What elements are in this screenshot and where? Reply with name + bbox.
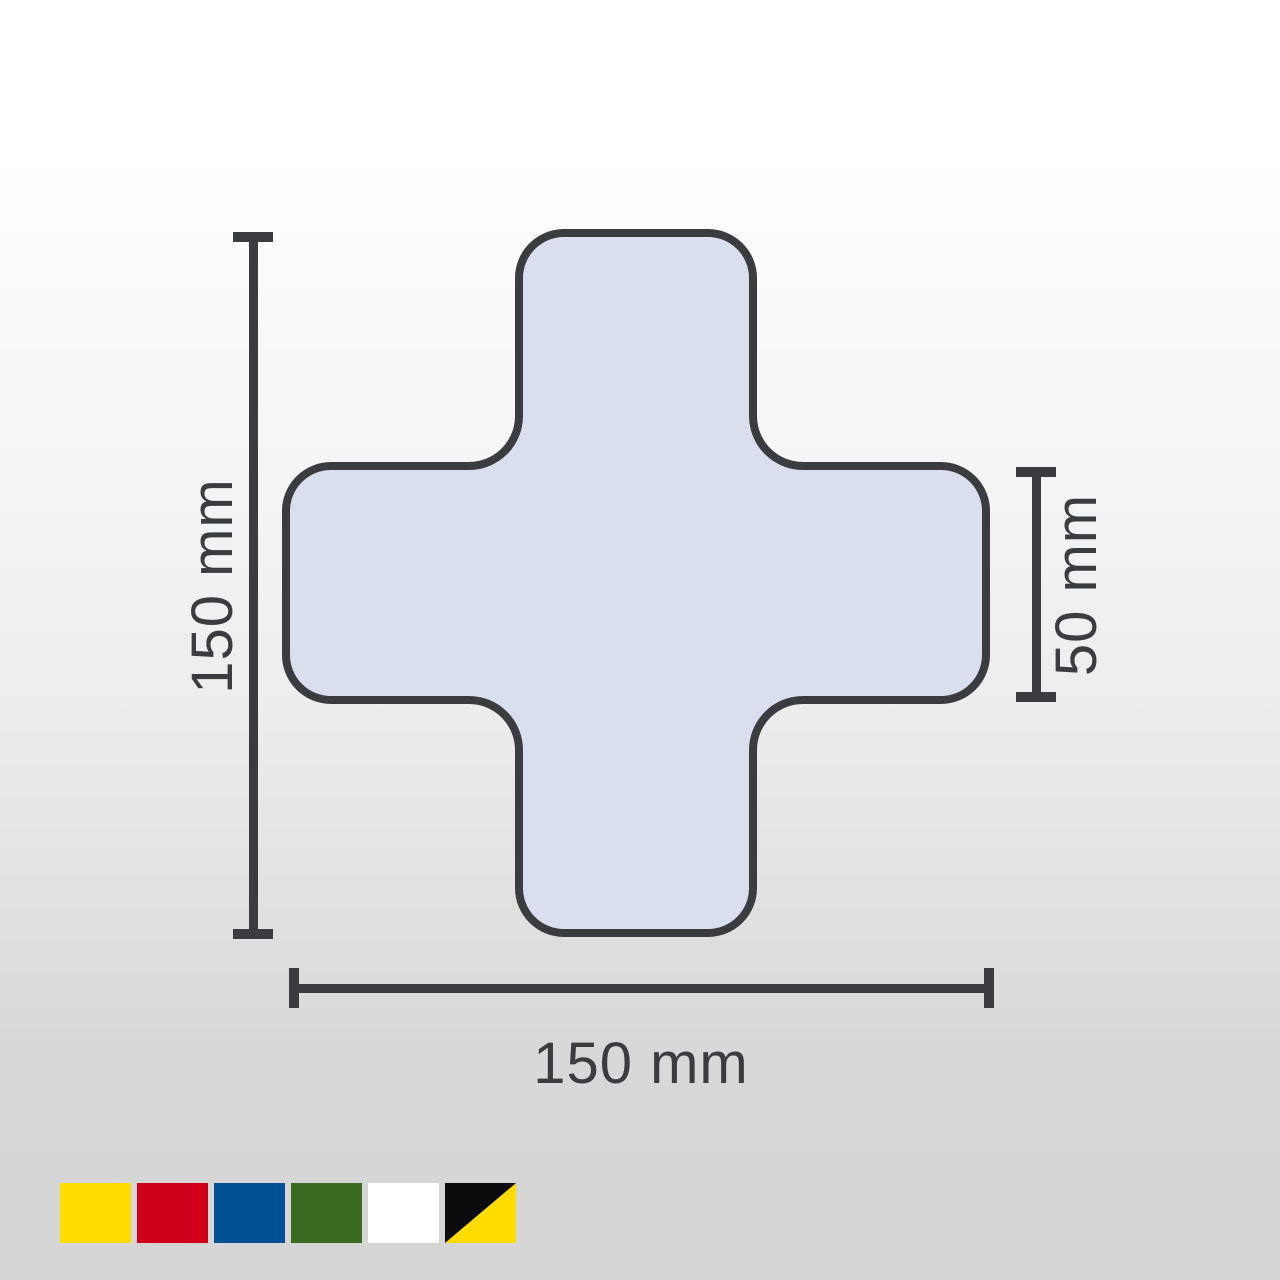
width-dimension-line <box>294 984 989 993</box>
cross-outline <box>286 233 986 933</box>
swatch-white <box>368 1183 439 1243</box>
product-dimension-diagram: 150 mm 50 mm 150 mm <box>0 0 1280 1280</box>
arm-width-dimension-label: 50 mm <box>1046 435 1108 735</box>
swatch-green <box>291 1183 362 1243</box>
height-dimension-line <box>249 237 258 934</box>
swatch-black-yellow <box>445 1183 516 1243</box>
height-dimension-cap-bottom <box>233 929 273 939</box>
swatch-blue <box>214 1183 285 1243</box>
arm-width-dimension-line <box>1032 472 1041 697</box>
color-options <box>60 1183 516 1243</box>
width-dimension-cap-left <box>289 968 299 1008</box>
swatch-red <box>137 1183 208 1243</box>
width-dimension-cap-right <box>984 968 994 1008</box>
height-dimension-label: 150 mm <box>182 436 244 736</box>
height-dimension-cap-top <box>233 232 273 242</box>
swatch-yellow <box>60 1183 131 1243</box>
width-dimension-label: 150 mm <box>441 1033 841 1095</box>
